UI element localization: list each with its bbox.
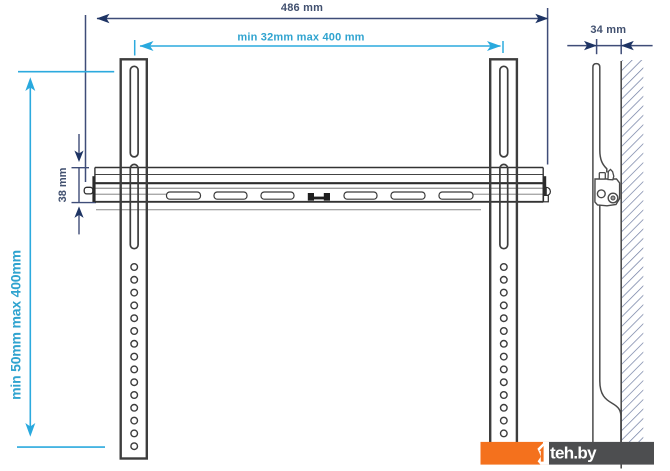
svg-text:min 32mm max 400 mm: min 32mm max 400 mm bbox=[237, 32, 364, 44]
svg-text:teh.by: teh.by bbox=[550, 444, 597, 463]
svg-text:38 mm: 38 mm bbox=[57, 167, 69, 202]
svg-text:486 mm: 486 mm bbox=[281, 2, 323, 14]
svg-text:min 50mm max 400mm: min 50mm max 400mm bbox=[8, 250, 24, 400]
svg-text:34 mm: 34 mm bbox=[590, 24, 626, 36]
